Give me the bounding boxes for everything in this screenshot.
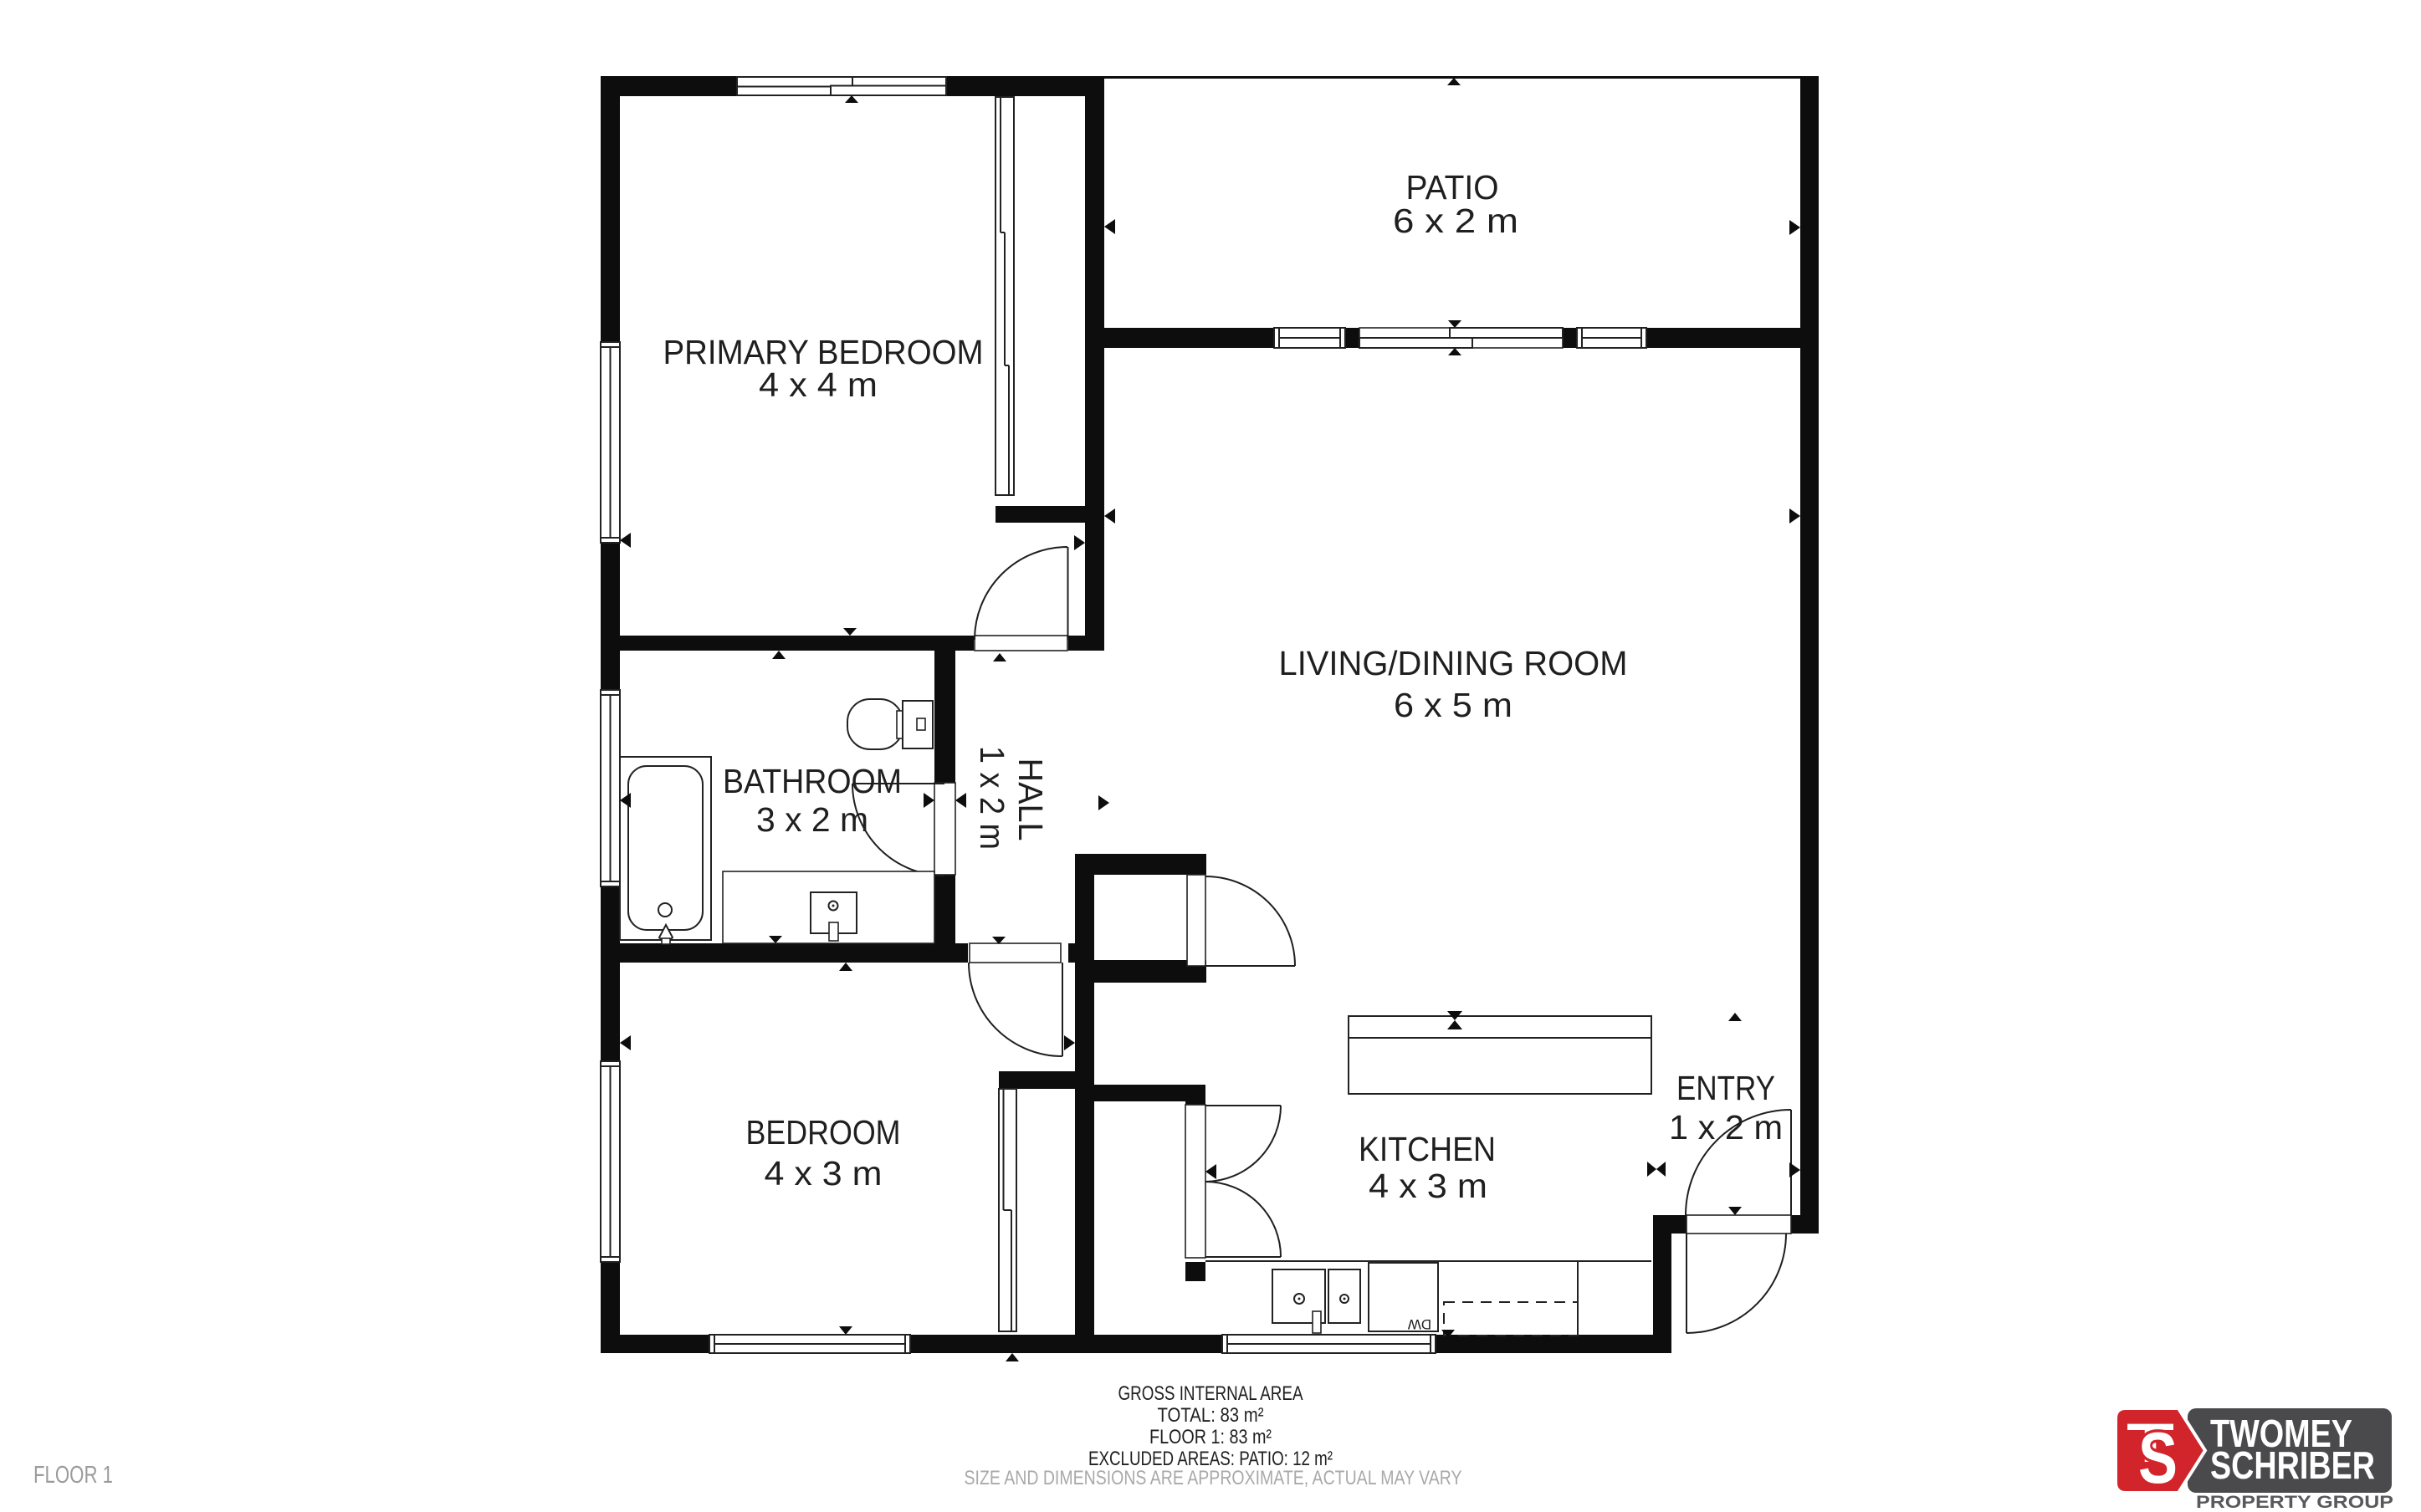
svg-text:6 x 5 m: 6 x 5 m xyxy=(1394,686,1512,724)
svg-text:BEDROOM: BEDROOM xyxy=(746,1113,901,1152)
svg-text:PROPERTY GROUP: PROPERTY GROUP xyxy=(2196,1493,2393,1512)
svg-text:ENTRY: ENTRY xyxy=(1676,1069,1775,1107)
svg-text:SCHRIBER: SCHRIBER xyxy=(2210,1443,2375,1487)
svg-text:4 x 3 m: 4 x 3 m xyxy=(1369,1167,1487,1205)
svg-text:FLOOR 1: 83 m²: FLOOR 1: 83 m² xyxy=(1149,1426,1272,1448)
svg-text:DW: DW xyxy=(1408,1316,1431,1332)
svg-text:BATHROOM: BATHROOM xyxy=(723,762,902,800)
svg-text:S: S xyxy=(2138,1418,2178,1499)
svg-text:6 x 2 m: 6 x 2 m xyxy=(1393,202,1518,240)
svg-text:LIVING/DINING ROOM: LIVING/DINING ROOM xyxy=(1279,644,1628,682)
svg-text:KITCHEN: KITCHEN xyxy=(1359,1130,1496,1168)
svg-text:GROSS INTERNAL AREA: GROSS INTERNAL AREA xyxy=(1118,1382,1303,1405)
svg-text:1 x 2 m: 1 x 2 m xyxy=(1669,1108,1783,1147)
svg-text:TOTAL: 83 m²: TOTAL: 83 m² xyxy=(1158,1404,1264,1427)
svg-text:3 x 2 m: 3 x 2 m xyxy=(756,800,868,839)
svg-text:4 x 4 m: 4 x 4 m xyxy=(759,365,878,404)
svg-text:SIZE AND DIMENSIONS ARE APPROX: SIZE AND DIMENSIONS ARE APPROXIMATE, ACT… xyxy=(965,1467,1462,1489)
svg-text:FLOOR 1: FLOOR 1 xyxy=(33,1462,113,1489)
svg-text:HALL: HALL xyxy=(1011,759,1050,841)
svg-text:1 x 2 m: 1 x 2 m xyxy=(973,746,1011,850)
svg-text:4 x 3 m: 4 x 3 m xyxy=(765,1154,883,1193)
